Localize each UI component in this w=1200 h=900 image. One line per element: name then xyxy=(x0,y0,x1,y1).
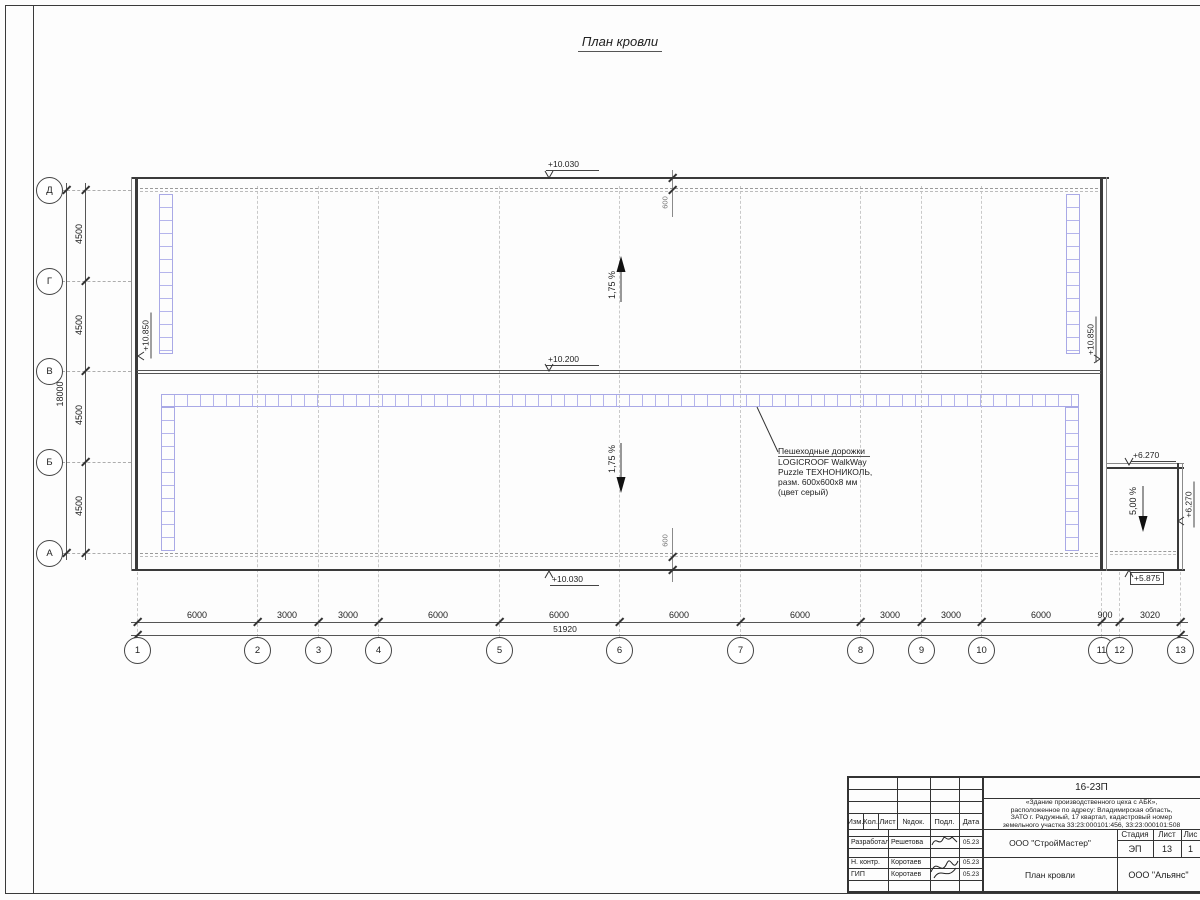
walkway-strip-lower-horizontal xyxy=(161,394,1079,407)
left-wall xyxy=(135,177,138,571)
elevation-left-wall: +10.850 xyxy=(141,313,152,359)
parapet-dashed-bottom xyxy=(140,553,1098,557)
column-axis-bubble: 13 xyxy=(1167,637,1194,664)
sheets-value: 1 xyxy=(1181,840,1200,857)
elevation-annex-right: +6.270 xyxy=(1184,482,1195,528)
stamp-name: Коротаев xyxy=(888,857,930,868)
row-axis-line xyxy=(62,190,131,191)
dimension-label: 6000 xyxy=(167,610,227,620)
callout-line: Puzzle ТЕХНОНИКОЛЬ, xyxy=(778,467,872,477)
elevation-right-wall: +10.850 xyxy=(1086,317,1097,363)
stamp-date: 05.23 xyxy=(959,868,983,880)
annex-top-edge xyxy=(1107,467,1184,469)
walkway-strip-lower-right xyxy=(1065,407,1079,551)
column-axis-bubble: 6 xyxy=(606,637,633,664)
callout-line: разм. 600x600x8 мм xyxy=(778,477,857,487)
row-axis-line xyxy=(62,462,131,463)
row-axis-bubble: В xyxy=(36,358,63,385)
row-axis-line xyxy=(62,553,131,554)
elevation-top: +10.030 xyxy=(546,159,599,171)
ridge-line xyxy=(137,370,1101,371)
walkway-strip-lower-left xyxy=(161,407,175,551)
drawing-title: План кровли xyxy=(520,34,720,49)
stage-value: ЭП xyxy=(1117,840,1153,857)
stamp-role: Разработал xyxy=(848,836,888,848)
elevation-ridge: +10.200 xyxy=(546,354,599,366)
dimension-label: 4500 xyxy=(74,385,84,445)
column-axis-bubble: 10 xyxy=(968,637,995,664)
dimension-line-bottom-2 xyxy=(131,635,1188,636)
row-axis-bubble: А xyxy=(36,540,63,567)
frame-top xyxy=(5,5,1200,6)
callout-line: (цвет серый) xyxy=(778,487,828,497)
dimension-label: 4500 xyxy=(74,295,84,355)
stamp-date: 05.23 xyxy=(959,836,983,848)
signature xyxy=(930,833,960,849)
callout-leader-line xyxy=(757,407,778,452)
dimension-label: 3000 xyxy=(257,610,317,620)
stage-label: Стадия xyxy=(1117,829,1153,840)
stamp-header-ndoc: №док. xyxy=(897,813,930,829)
stamp-role: Н. контр. xyxy=(848,857,888,868)
slope-label-annex: 5,00 % xyxy=(1128,471,1138,531)
sheet-value: 13 xyxy=(1153,840,1181,857)
dimension-label: 3020 xyxy=(1125,610,1175,620)
row-axis-bubble: Г xyxy=(36,268,63,295)
stamp-header-data: Дата xyxy=(959,813,983,829)
signature xyxy=(928,854,960,882)
walkway-strip-upper-right xyxy=(1066,194,1080,354)
ridge-line xyxy=(137,373,1101,374)
column-grid-line xyxy=(1101,572,1102,637)
row-axis-bubble: Б xyxy=(36,449,63,476)
slope-label-upper: 1,75 % xyxy=(607,255,617,315)
column-axis-bubble: 1 xyxy=(124,637,151,664)
dimension-label: 6000 xyxy=(770,610,830,620)
stamp-header-list: Лист xyxy=(878,813,897,829)
dimension-label: 6000 xyxy=(408,610,468,620)
dimension-label: 6000 xyxy=(1011,610,1071,620)
callout-line: LOGICROOF WalkWay xyxy=(778,457,867,467)
annex-dashed-line xyxy=(1110,551,1176,555)
dimension-label: 3000 xyxy=(921,610,981,620)
parapet-dashed-top xyxy=(140,188,1098,192)
roof-top-edge xyxy=(131,177,1109,179)
row-axis-line xyxy=(62,371,131,372)
stamp-header-podl: Подл. xyxy=(930,813,959,829)
dimension-label: 3000 xyxy=(318,610,378,620)
right-wall-outer xyxy=(1106,177,1107,571)
stamp-name: Решетова xyxy=(888,836,930,848)
column-grid-line xyxy=(1119,572,1120,637)
column-axis-bubble: 8 xyxy=(847,637,874,664)
elevation-bottom: +10.030 xyxy=(550,574,599,586)
column-axis-bubble: 4 xyxy=(365,637,392,664)
column-axis-bubble: 12 xyxy=(1106,637,1133,664)
stamp-header-izm: Изм. xyxy=(848,813,863,829)
column-axis-bubble: 2 xyxy=(244,637,271,664)
left-wall-outer xyxy=(131,177,132,571)
right-wall xyxy=(1100,177,1103,571)
frame-bottom xyxy=(5,893,1200,894)
stamp-header-kol: Кол. xyxy=(863,813,878,829)
slope-arrow-head-annex xyxy=(1139,516,1148,532)
dimension-label: 3000 xyxy=(860,610,920,620)
elevation-annex-top: +6.270 xyxy=(1131,450,1176,462)
doc-number: 16-23П xyxy=(983,777,1200,798)
drawing-sheet: План кровли 600 600 +10.030 +10. xyxy=(0,0,1200,900)
column-axis-bubble: 5 xyxy=(486,637,513,664)
stamp-date: 05.23 xyxy=(959,857,983,868)
dimension-label: 4500 xyxy=(74,204,84,264)
frame-left-outer xyxy=(5,5,6,894)
column-axis-bubble: 7 xyxy=(727,637,754,664)
stamp-name: Коротаев xyxy=(888,868,930,880)
slope-arrow-head-upper xyxy=(617,256,626,272)
offset-600-label-bottom: 600 xyxy=(661,526,670,556)
column-grid-line xyxy=(1180,572,1181,637)
dimension-label: 6000 xyxy=(529,610,589,620)
slope-arrow-head-lower xyxy=(617,477,626,493)
dimension-line-bottom-1 xyxy=(131,622,1188,623)
walkway-strip-upper-left xyxy=(159,194,173,354)
dimension-label: 4500 xyxy=(74,476,84,536)
dimension-total-label: 51920 xyxy=(535,624,595,634)
annex-top-outer xyxy=(1107,463,1184,464)
elevation-annex-bottom: +5.875 xyxy=(1130,572,1164,585)
arrows-overlay xyxy=(0,0,1200,900)
sheet-label: Лист xyxy=(1153,829,1181,840)
dimension-line-left-2 xyxy=(66,183,67,560)
organization: ООО "СтройМастер" xyxy=(983,829,1117,857)
dimension-label: 6000 xyxy=(649,610,709,620)
stamp-role: ГИП xyxy=(848,868,888,880)
walkway-callout: Пешеходные дорожки LOGICROOF WalkWay Puz… xyxy=(778,446,872,497)
sheet-title: План кровли xyxy=(983,857,1117,892)
callout-line: Пешеходные дорожки xyxy=(778,446,870,457)
annex-right-wall xyxy=(1177,463,1179,570)
company2: ООО "Альянс" xyxy=(1117,857,1200,892)
sheets-label: Лис xyxy=(1181,829,1200,840)
row-axis-bubble: Д xyxy=(36,177,63,204)
column-axis-bubble: 9 xyxy=(908,637,935,664)
frame-left-inner xyxy=(33,5,34,894)
column-axis-bubble: 3 xyxy=(305,637,332,664)
roof-bottom-edge xyxy=(131,569,1185,571)
row-axis-line xyxy=(62,281,131,282)
project-description: «Здание производственного цеха с АБК», р… xyxy=(983,799,1200,829)
slope-label-lower: 1,75 % xyxy=(607,429,617,489)
column-grid-line xyxy=(137,572,138,637)
